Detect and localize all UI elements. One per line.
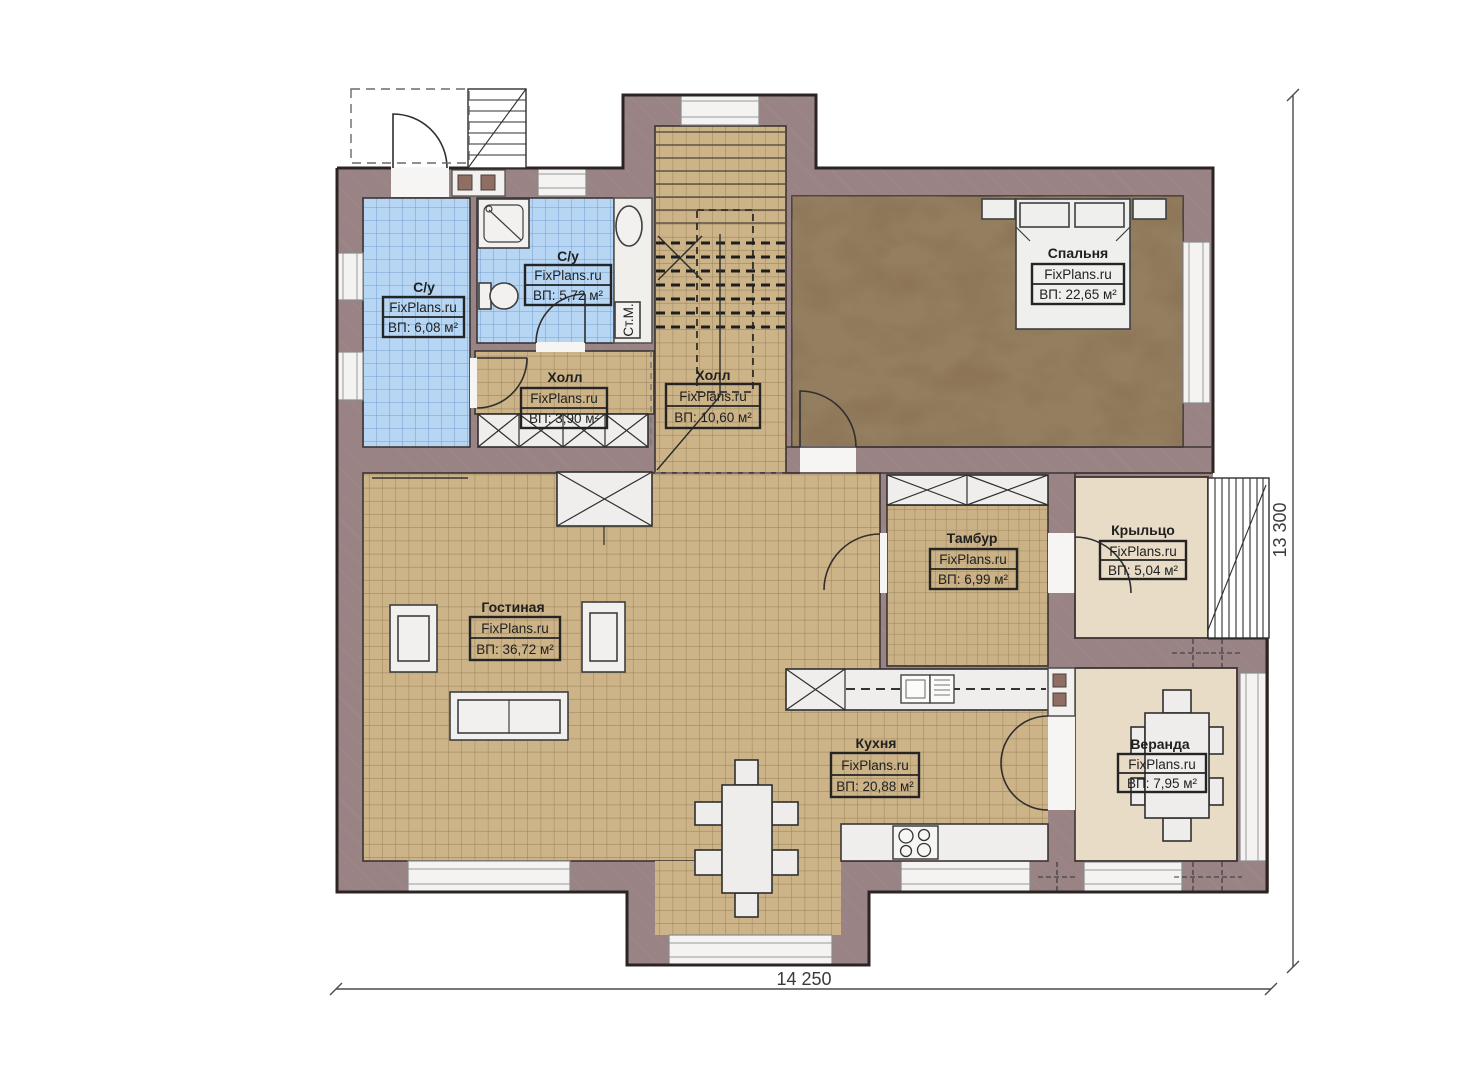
svg-text:С/у: С/у [413, 279, 435, 295]
svg-text:ВП: 22,65 м²: ВП: 22,65 м² [1039, 287, 1117, 302]
svg-text:FixPlans.ru: FixPlans.ru [1109, 544, 1177, 559]
svg-text:Ст.М.: Ст.М. [621, 303, 636, 336]
svg-text:Гостиная: Гостиная [481, 599, 544, 615]
svg-text:FixPlans.ru: FixPlans.ru [389, 300, 457, 315]
svg-text:FixPlans.ru: FixPlans.ru [1044, 267, 1112, 282]
svg-text:14 250: 14 250 [776, 969, 831, 989]
svg-text:Тамбур: Тамбур [947, 530, 998, 546]
svg-text:Веранда: Веранда [1130, 736, 1190, 752]
svg-text:FixPlans.ru: FixPlans.ru [530, 391, 598, 406]
svg-text:FixPlans.ru: FixPlans.ru [679, 389, 747, 404]
svg-text:13 300: 13 300 [1270, 502, 1290, 557]
svg-text:ВП: 5,72 м²: ВП: 5,72 м² [533, 288, 604, 303]
svg-text:FixPlans.ru: FixPlans.ru [481, 621, 549, 636]
svg-text:Холл: Холл [547, 369, 582, 385]
svg-text:ВП: 36,72 м²: ВП: 36,72 м² [476, 642, 554, 657]
svg-text:FixPlans.ru: FixPlans.ru [1128, 757, 1196, 772]
svg-text:ВП: 20,88 м²: ВП: 20,88 м² [836, 779, 914, 794]
svg-text:Крыльцо: Крыльцо [1111, 522, 1175, 538]
svg-text:Спальня: Спальня [1048, 245, 1108, 261]
svg-text:FixPlans.ru: FixPlans.ru [841, 758, 909, 773]
svg-text:ВП: 5,04 м²: ВП: 5,04 м² [1108, 563, 1179, 578]
svg-text:ВП: 6,99 м²: ВП: 6,99 м² [938, 572, 1009, 587]
svg-text:ВП: 3,90 м²: ВП: 3,90 м² [529, 411, 600, 426]
svg-text:ВП: 7,95 м²: ВП: 7,95 м² [1127, 776, 1198, 791]
svg-text:FixPlans.ru: FixPlans.ru [534, 268, 602, 283]
svg-text:ВП: 6,08 м²: ВП: 6,08 м² [388, 320, 459, 335]
svg-text:ВП: 10,60 м²: ВП: 10,60 м² [674, 410, 752, 425]
svg-text:FixPlans.ru: FixPlans.ru [939, 552, 1007, 567]
svg-text:Холл: Холл [695, 367, 730, 383]
svg-text:Кухня: Кухня [856, 735, 897, 751]
svg-text:С/у: С/у [557, 248, 579, 264]
